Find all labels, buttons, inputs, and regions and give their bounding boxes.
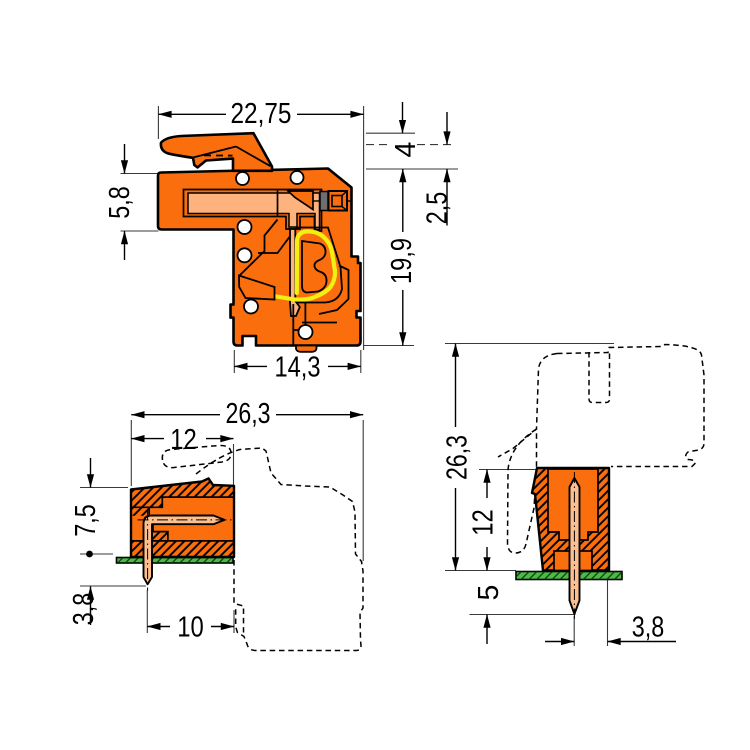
svg-text:12: 12 [170, 424, 197, 456]
svg-text:5,8: 5,8 [104, 186, 136, 219]
svg-text:12: 12 [468, 509, 500, 536]
svg-text:14,3: 14,3 [275, 352, 321, 384]
svg-text:3,8: 3,8 [68, 593, 100, 626]
svg-text:4: 4 [390, 141, 422, 157]
svg-text:5: 5 [473, 585, 505, 601]
svg-text:19,9: 19,9 [386, 238, 418, 284]
svg-text:10: 10 [177, 612, 204, 644]
svg-text:22,75: 22,75 [231, 98, 292, 130]
svg-text:2,5: 2,5 [422, 192, 454, 225]
svg-text:26,3: 26,3 [442, 435, 474, 480]
svg-text:3,8: 3,8 [632, 612, 665, 644]
svg-text:26,3: 26,3 [226, 398, 271, 430]
svg-text:7,5: 7,5 [70, 504, 102, 537]
